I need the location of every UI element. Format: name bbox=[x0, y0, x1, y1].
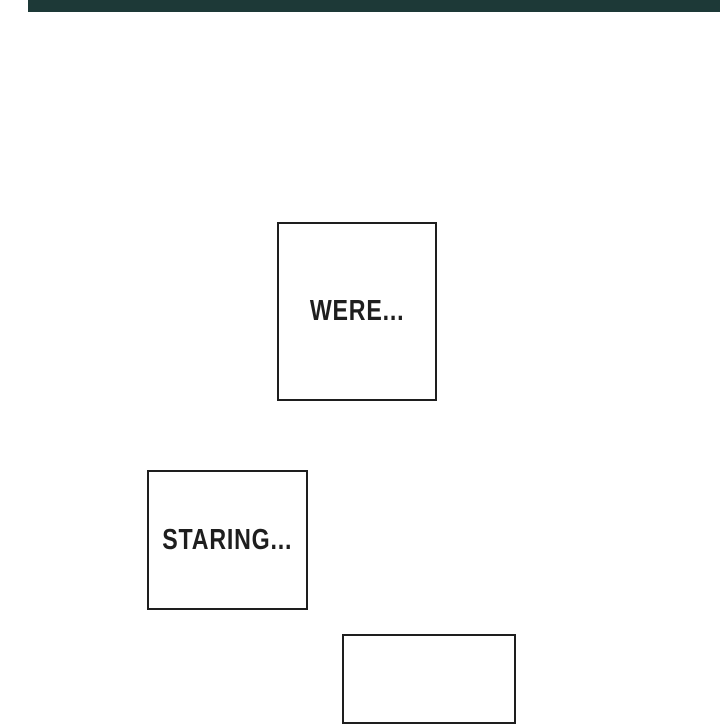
previous-panel-edge bbox=[28, 0, 720, 12]
caption-box-staring: STARING... bbox=[147, 470, 308, 610]
caption-box-were: WERE... bbox=[277, 222, 437, 401]
caption-text-staring: STARING... bbox=[162, 524, 292, 557]
comic-page: WERE... STARING... bbox=[0, 0, 720, 700]
caption-text-were: WERE... bbox=[310, 295, 405, 328]
caption-box-bottom-cutoff bbox=[342, 634, 516, 724]
